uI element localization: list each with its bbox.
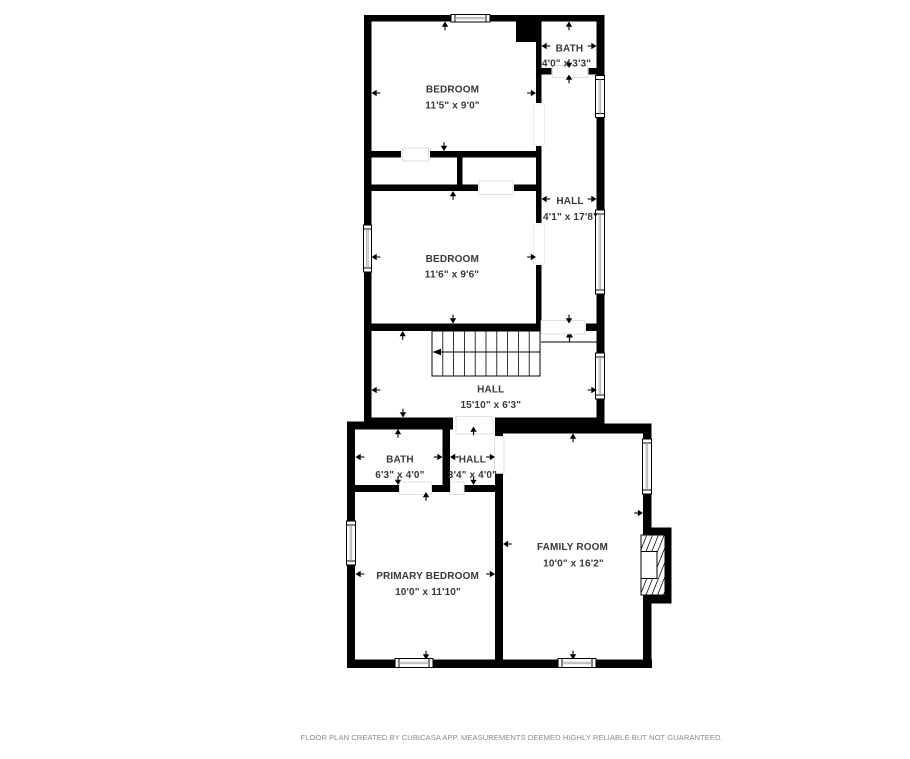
svg-text:4'1" x 17'8": 4'1" x 17'8" [543, 212, 598, 223]
svg-text:HALL: HALL [556, 196, 583, 207]
svg-text:FLOOR PLAN CREATED BY CUBICASA: FLOOR PLAN CREATED BY CUBICASA APP. MEAS… [301, 733, 723, 742]
svg-text:3'4" x 4'0": 3'4" x 4'0" [448, 470, 497, 481]
svg-text:BEDROOM: BEDROOM [426, 254, 479, 265]
svg-text:10'0" x 16'2": 10'0" x 16'2" [543, 558, 604, 569]
svg-text:PRIMARY BEDROOM: PRIMARY BEDROOM [376, 571, 479, 582]
svg-text:10'0" x 11'10": 10'0" x 11'10" [395, 587, 461, 598]
svg-text:HALL: HALL [477, 385, 504, 396]
svg-text:BATH: BATH [386, 455, 414, 466]
svg-text:HALL: HALL [459, 455, 486, 466]
svg-text:BATH: BATH [556, 43, 584, 54]
svg-text:FAMILY ROOM: FAMILY ROOM [537, 542, 608, 553]
svg-text:11'6" x 9'6": 11'6" x 9'6" [425, 270, 480, 281]
svg-text:15'10" x 6'3": 15'10" x 6'3" [460, 400, 521, 411]
svg-text:6'3" x 4'0": 6'3" x 4'0" [375, 470, 424, 481]
svg-text:4'0" x 3'3": 4'0" x 3'3" [542, 59, 591, 70]
svg-text:BEDROOM: BEDROOM [426, 84, 479, 95]
svg-text:11'5" x 9'0": 11'5" x 9'0" [425, 100, 480, 111]
